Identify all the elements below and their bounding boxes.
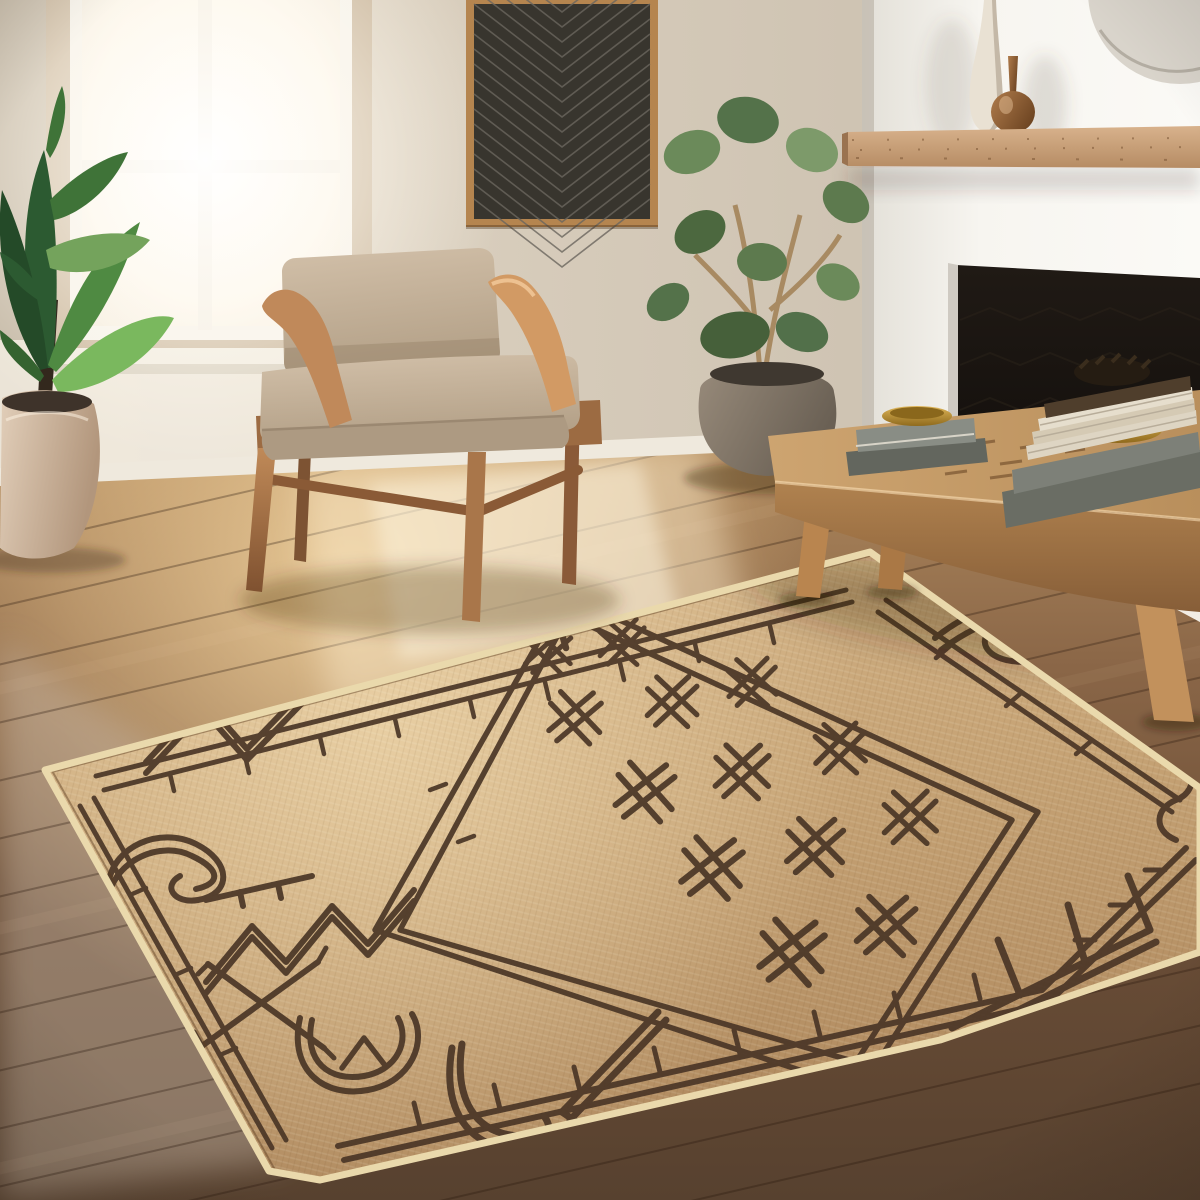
scene-canvas <box>0 0 1200 1200</box>
living-room-product-photo <box>0 0 1200 1200</box>
vignette <box>0 0 1200 1200</box>
